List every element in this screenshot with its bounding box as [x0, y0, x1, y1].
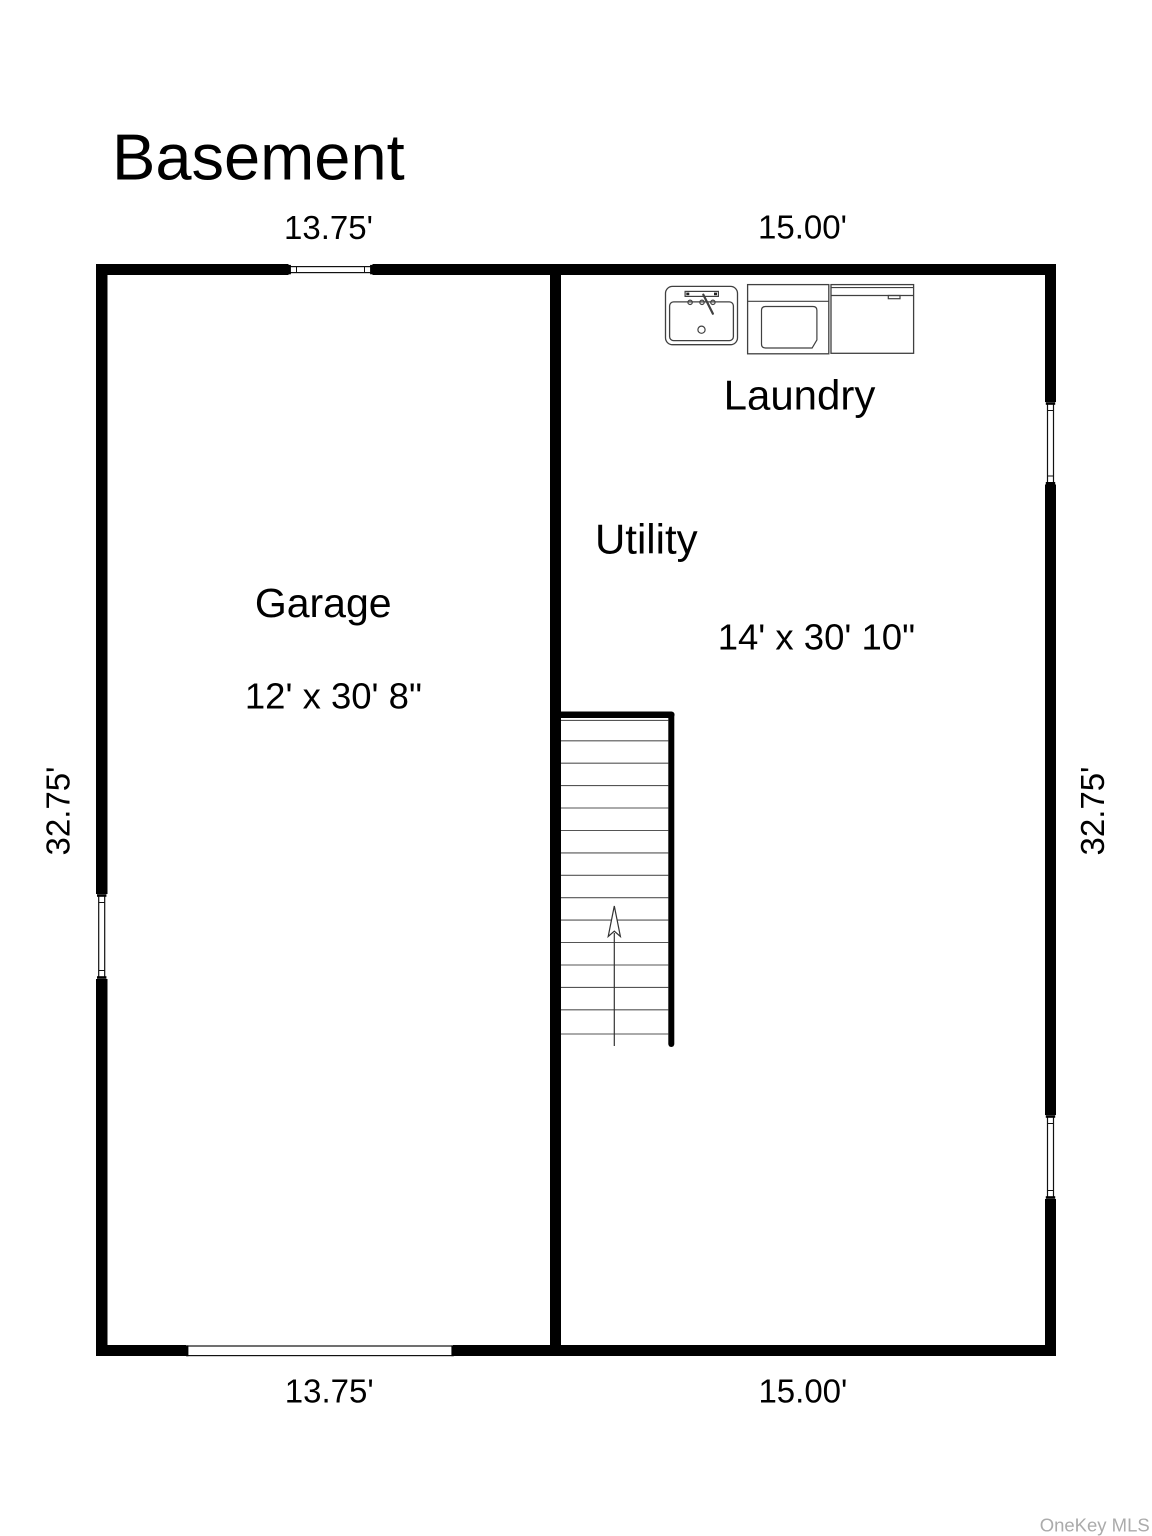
svg-text:32.75': 32.75'	[1074, 767, 1111, 856]
svg-text:12' x 30' 8": 12' x 30' 8"	[245, 676, 422, 717]
svg-text:13.75': 13.75'	[285, 1372, 374, 1409]
svg-text:15.00': 15.00'	[758, 209, 847, 246]
svg-text:15.00': 15.00'	[758, 1373, 847, 1410]
svg-text:Laundry: Laundry	[724, 372, 876, 419]
svg-text:Basement: Basement	[112, 121, 405, 194]
svg-text:13.75': 13.75'	[284, 209, 373, 246]
svg-text:14' x 30' 10": 14' x 30' 10"	[718, 616, 915, 657]
svg-text:OneKey MLS: OneKey MLS	[1040, 1515, 1150, 1536]
svg-text:Garage: Garage	[255, 580, 392, 626]
svg-text:Utility: Utility	[595, 516, 698, 563]
svg-text:32.75': 32.75'	[39, 767, 76, 856]
